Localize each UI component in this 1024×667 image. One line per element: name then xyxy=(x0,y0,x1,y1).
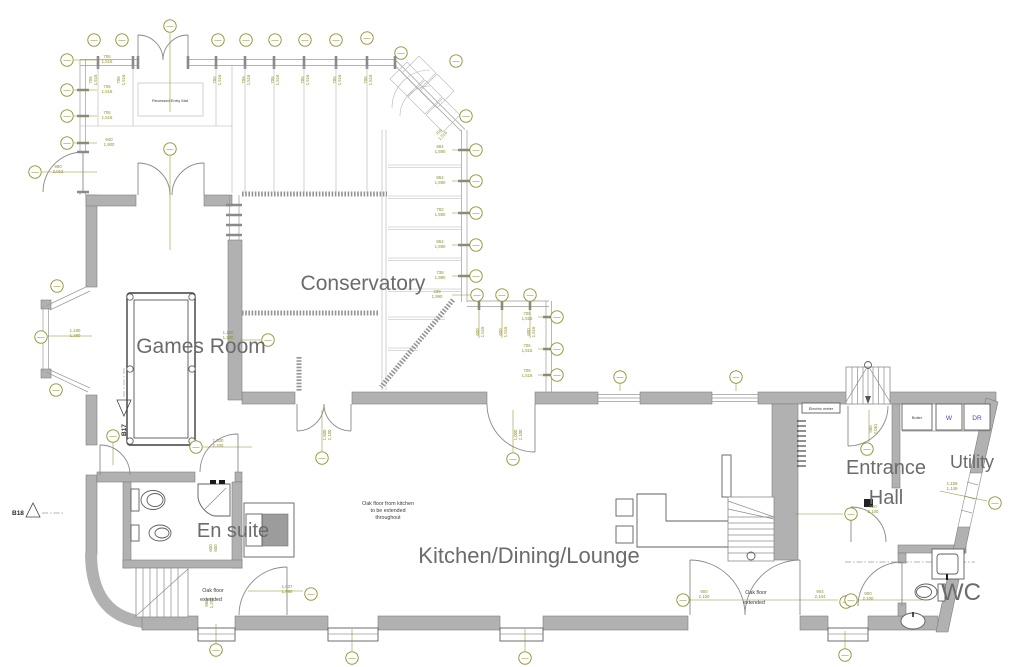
svg-text:1,590: 1,590 xyxy=(435,180,446,185)
svg-text:1,516: 1,516 xyxy=(102,115,113,120)
svg-text:2,104: 2,104 xyxy=(815,594,826,599)
svg-text:1,516: 1,516 xyxy=(480,326,485,337)
radiator xyxy=(797,421,806,466)
roof-glazing-squares xyxy=(390,56,460,132)
recessed-entry-mat-note: Recessed Entry Mat xyxy=(152,98,189,103)
oak-floor-extended-right-line1: Oak floor xyxy=(745,590,767,596)
svg-text:1,590: 1,590 xyxy=(435,149,446,154)
stairs-kitchen xyxy=(728,497,774,561)
svg-text:1,900: 1,900 xyxy=(104,142,115,147)
svg-text:1,516: 1,516 xyxy=(522,373,533,378)
svg-text:1,149: 1,149 xyxy=(947,486,958,491)
pool-table xyxy=(127,293,195,445)
window-sills xyxy=(198,395,982,642)
room-labels: Conservatory Games Room En suite Kitchen… xyxy=(136,272,994,606)
floor-plan-svg: 7061,516 7061,516 7061,516 9401,900 9802… xyxy=(0,0,1024,667)
svg-text:1,990: 1,990 xyxy=(435,275,446,280)
oak-floor-extended-left-line1: Oak floor xyxy=(202,588,224,594)
svg-text:1,516: 1,516 xyxy=(305,74,310,85)
svg-text:1,516: 1,516 xyxy=(246,74,251,85)
floor-plan-canvas: 7061,516 7061,516 7061,516 9401,900 9802… xyxy=(0,0,1024,667)
stairs-southwest xyxy=(136,568,188,617)
oak-floor-note-line3: throughout xyxy=(375,515,401,521)
svg-text:2,100: 2,100 xyxy=(518,429,523,440)
oak-floor-note-line1: Oak floor from kitchen xyxy=(362,501,414,507)
svg-text:2,061: 2,061 xyxy=(873,423,878,434)
washer-label: W xyxy=(946,415,953,422)
boiler-label: Boiler xyxy=(912,415,923,420)
svg-text:1,516: 1,516 xyxy=(368,74,373,85)
svg-text:1,280: 1,280 xyxy=(70,333,81,338)
wc-basin xyxy=(932,549,964,580)
svg-text:2,100: 2,100 xyxy=(868,509,879,514)
stairs-entrance xyxy=(846,362,890,405)
dryer-label: DR xyxy=(972,415,982,422)
oak-floor-extended-left-line2: extended xyxy=(200,597,222,603)
svg-text:1,516: 1,516 xyxy=(522,316,533,321)
svg-text:1,516: 1,516 xyxy=(503,326,508,337)
svg-text:1,990: 1,990 xyxy=(432,294,443,299)
svg-text:1,516: 1,516 xyxy=(531,326,536,337)
oak-floor-extended-right-line2: extended xyxy=(743,600,765,606)
entrance-hall-label-line2: Hall xyxy=(869,487,903,509)
svg-text:1,516: 1,516 xyxy=(337,74,342,85)
svg-text:2,100: 2,100 xyxy=(327,429,332,440)
entrance-hall-label-line1: Entrance xyxy=(846,457,926,479)
oak-floor-note-line2: to be extended xyxy=(370,508,405,514)
svg-text:1,516: 1,516 xyxy=(275,74,280,85)
conservatory-label: Conservatory xyxy=(301,272,426,295)
svg-text:2,100: 2,100 xyxy=(699,594,710,599)
svg-text:1,516: 1,516 xyxy=(93,74,98,85)
en-suite-label: En suite xyxy=(197,520,269,542)
svg-text:600: 600 xyxy=(213,544,218,552)
svg-text:1,516: 1,516 xyxy=(522,348,533,353)
kitchen-label: Kitchen/Dining/Lounge xyxy=(418,543,639,568)
svg-text:B18: B18 xyxy=(12,510,24,517)
section-marker-b18: B18 xyxy=(12,503,64,517)
en-suite-bidet xyxy=(131,525,171,541)
games-room-label: Games Room xyxy=(136,335,266,358)
svg-text:1,990: 1,990 xyxy=(282,589,293,594)
wc-label: WC xyxy=(941,579,981,606)
svg-text:2,100: 2,100 xyxy=(863,596,874,601)
svg-text:1,590: 1,590 xyxy=(435,244,446,249)
svg-text:2,012: 2,012 xyxy=(53,169,64,174)
utility-label: Utility xyxy=(950,452,994,472)
svg-text:1,516: 1,516 xyxy=(102,59,113,64)
svg-text:1,516: 1,516 xyxy=(102,89,113,94)
svg-text:1,516: 1,516 xyxy=(217,74,222,85)
shower xyxy=(198,480,230,516)
en-suite-toilet xyxy=(131,489,165,511)
svg-text:1,590: 1,590 xyxy=(435,212,446,217)
electric-meter-label: Electric meter xyxy=(809,406,834,411)
kitchen-island xyxy=(616,494,731,547)
svg-text:2,100: 2,100 xyxy=(213,443,224,448)
svg-text:B17: B17 xyxy=(121,424,128,436)
svg-text:1,516: 1,516 xyxy=(121,74,126,85)
